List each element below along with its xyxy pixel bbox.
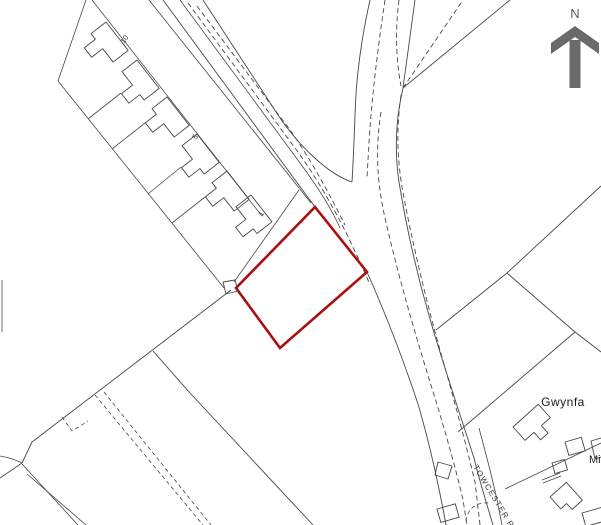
house-number-1: 1 xyxy=(256,210,266,219)
plot-outline xyxy=(236,207,367,348)
gwynfa-house xyxy=(513,404,557,448)
field-boundaries xyxy=(0,186,601,525)
house-number-10: 10 xyxy=(118,33,130,45)
corner-building xyxy=(582,507,601,525)
red-plot-boundary xyxy=(223,207,367,348)
north-arrow-icon: N xyxy=(551,6,599,88)
terrace-garden-lines xyxy=(58,0,299,288)
partial-label-mi: Mi xyxy=(589,454,601,466)
road-dashed-lines xyxy=(188,0,489,525)
north-label: N xyxy=(570,6,579,21)
building-west-of-road xyxy=(437,504,459,523)
buildings xyxy=(435,404,601,525)
outbuilding-1 xyxy=(565,437,585,455)
roadside-structure xyxy=(435,462,452,479)
property-name-label: Gwynfa xyxy=(541,395,585,409)
terrace-houses xyxy=(80,22,272,241)
map-canvas: 10 5 1 xyxy=(0,0,601,525)
house-south xyxy=(550,482,582,515)
site-plan-map: 10 5 1 xyxy=(0,0,601,525)
road-name-label: TOWCESTER R xyxy=(471,463,516,525)
house-number-5: 5 xyxy=(190,133,200,142)
outbuilding-2 xyxy=(552,459,568,473)
